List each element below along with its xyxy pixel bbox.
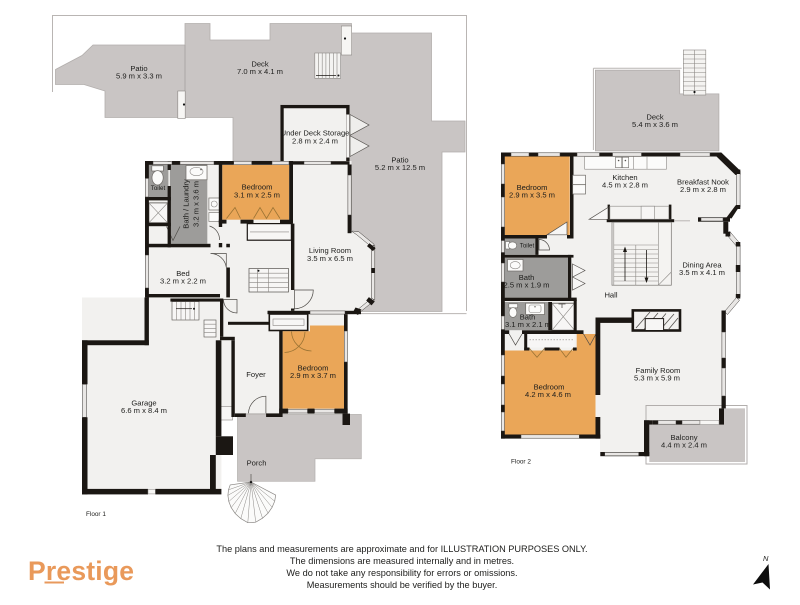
svg-text:We do not take any responsibil: We do not take any responsibility for er… xyxy=(286,568,517,578)
svg-text:4.4 m x 2.4 m: 4.4 m x 2.4 m xyxy=(661,441,707,450)
svg-text:5.2 m x 12.5 m: 5.2 m x 12.5 m xyxy=(375,163,425,172)
svg-text:2.9 m x 3.5 m: 2.9 m x 3.5 m xyxy=(509,191,555,200)
svg-text:Floor 1: Floor 1 xyxy=(86,511,106,518)
svg-text:3.5 m x 6.5 m: 3.5 m x 6.5 m xyxy=(307,254,353,263)
svg-text:Prestige: Prestige xyxy=(28,556,134,586)
svg-text:5.4 m x 3.6 m: 5.4 m x 3.6 m xyxy=(632,120,678,129)
svg-text:6.6 m x 8.4 m: 6.6 m x 8.4 m xyxy=(121,406,167,415)
svg-text:The dimensions are measured in: The dimensions are measured internally a… xyxy=(290,556,514,566)
svg-text:4.5 m x 2.8 m: 4.5 m x 2.8 m xyxy=(602,181,648,190)
svg-text:Toilet: Toilet xyxy=(151,185,166,192)
svg-text:3.2 m x 3.6 m: 3.2 m x 3.6 m xyxy=(192,181,201,227)
svg-text:3.5 m x 4.1 m: 3.5 m x 4.1 m xyxy=(679,268,725,277)
svg-text:N: N xyxy=(763,554,769,563)
svg-text:4.2 m x 4.6 m: 4.2 m x 4.6 m xyxy=(525,390,571,399)
svg-text:Hall: Hall xyxy=(604,291,617,300)
svg-text:7.0 m x 4.1 m: 7.0 m x 4.1 m xyxy=(237,67,283,76)
svg-text:Toilet: Toilet xyxy=(520,243,535,250)
svg-text:5.9 m x 3.3 m: 5.9 m x 3.3 m xyxy=(116,72,162,81)
svg-text:Floor 2: Floor 2 xyxy=(511,458,531,465)
svg-text:Foyer: Foyer xyxy=(246,370,266,379)
svg-text:2.5 m x 1.9 m: 2.5 m x 1.9 m xyxy=(503,281,549,290)
svg-text:Bath / Laundry: Bath / Laundry xyxy=(182,179,191,229)
svg-text:2.8 m x 2.4 m: 2.8 m x 2.4 m xyxy=(292,137,338,146)
svg-text:The plans and measurements are: The plans and measurements are approxima… xyxy=(216,544,587,554)
svg-text:Measurements should be verifie: Measurements should be verified by the b… xyxy=(307,580,498,590)
svg-text:Porch: Porch xyxy=(247,459,267,468)
svg-text:3.2 m x 2.2 m: 3.2 m x 2.2 m xyxy=(160,277,206,286)
svg-text:2.9 m x 2.8 m: 2.9 m x 2.8 m xyxy=(680,185,726,194)
svg-text:3.1 m x 2.5 m: 3.1 m x 2.5 m xyxy=(234,191,280,200)
svg-text:3.1 m x 2.1 m: 3.1 m x 2.1 m xyxy=(505,320,551,329)
svg-text:2.9 m x 3.7 m: 2.9 m x 3.7 m xyxy=(290,371,336,380)
svg-text:5.3 m x 5.9 m: 5.3 m x 5.9 m xyxy=(634,374,680,383)
